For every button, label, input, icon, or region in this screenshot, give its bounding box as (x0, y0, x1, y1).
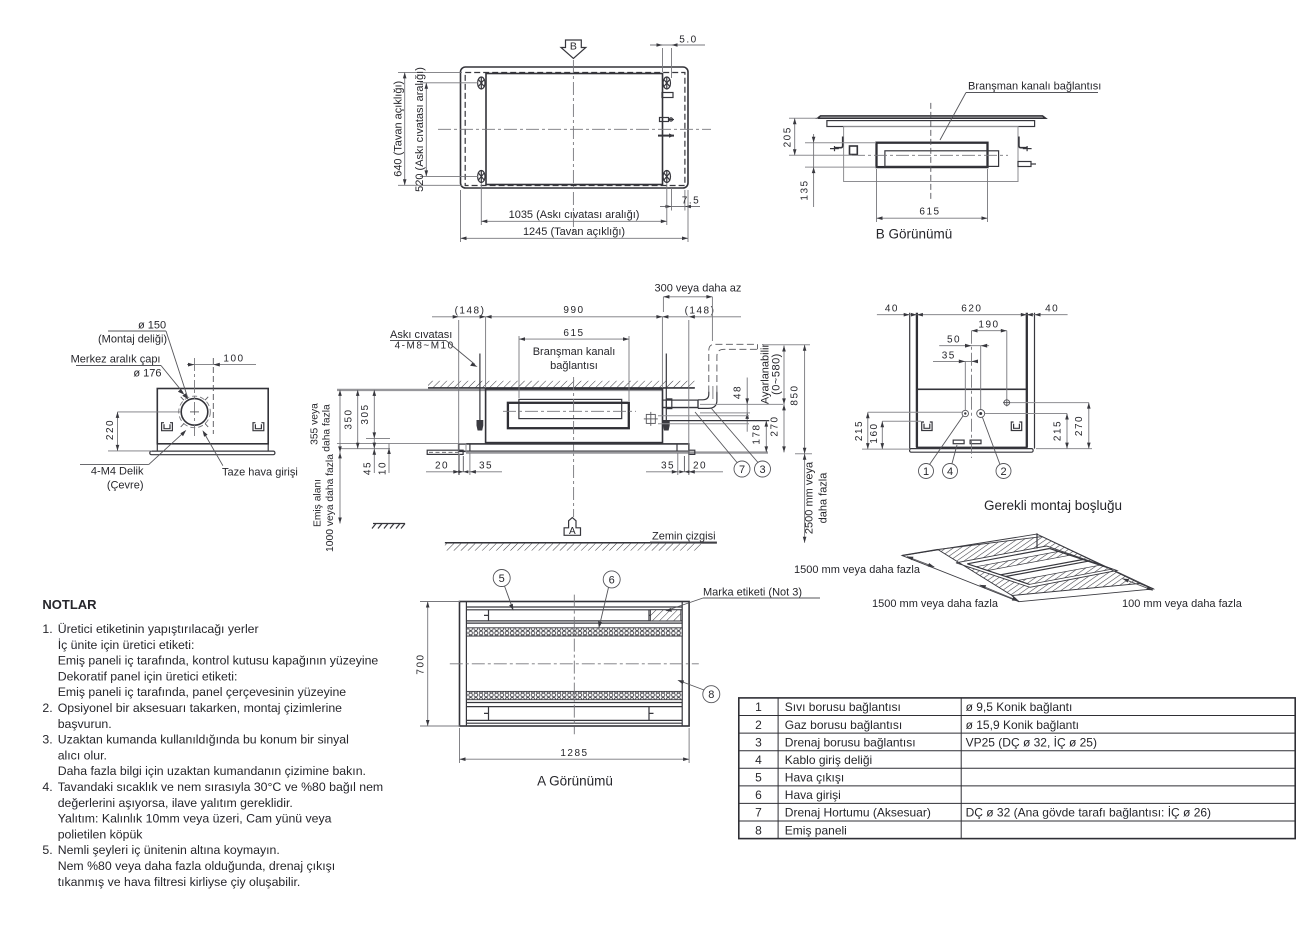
svg-text:48: 48 (733, 385, 744, 399)
svg-text:50: 50 (947, 335, 961, 346)
svg-text:1285: 1285 (560, 748, 588, 759)
svg-text:5.0: 5.0 (679, 35, 697, 46)
svg-text:A Görünümü: A Görünümü (537, 774, 613, 789)
svg-text:(0~580): (0~580) (771, 353, 783, 395)
svg-text:1000 veya daha fazla: 1000 veya daha fazla (325, 454, 336, 552)
svg-text:2: 2 (1000, 466, 1006, 478)
svg-text:İç ünite için üretici etiketi:: İç ünite için üretici etiketi: (58, 638, 195, 652)
svg-text:Opsiyonel bir aksesuarı takark: Opsiyonel bir aksesuarı takarken, montaj… (58, 701, 342, 715)
svg-text:1500 mm veya daha fazla: 1500 mm veya daha fazla (794, 564, 921, 576)
svg-text:215: 215 (1053, 420, 1064, 441)
svg-text:Merkez aralık çapı: Merkez aralık çapı (71, 354, 161, 366)
svg-text:305: 305 (360, 403, 371, 424)
svg-text:20: 20 (693, 461, 707, 472)
svg-text:B: B (570, 41, 577, 53)
svg-text:alıcı olur.: alıcı olur. (58, 748, 107, 762)
svg-text:4: 4 (755, 753, 762, 767)
svg-text:Emiş paneli: Emiş paneli (785, 823, 847, 837)
svg-text:6: 6 (755, 788, 762, 802)
svg-text:Hava çıkışı: Hava çıkışı (785, 771, 844, 785)
svg-text:1500 mm veya daha fazla: 1500 mm veya daha fazla (872, 598, 999, 610)
svg-text:değerlerini aşıyorsa, ilave ya: değerlerini aşıyorsa, ilave yalıtım gere… (58, 796, 293, 810)
svg-text:Marka etiketi (Not 3): Marka etiketi (Not 3) (703, 587, 802, 599)
svg-text:355 veya: 355 veya (310, 403, 321, 445)
svg-text:Askı cıvatası: Askı cıvatası (390, 329, 452, 341)
svg-text:başvurun.: başvurun. (58, 717, 112, 731)
svg-text:100 mm veya daha fazla: 100 mm veya daha fazla (1122, 598, 1243, 610)
svg-text:2500 mm veya: 2500 mm veya (804, 461, 816, 534)
svg-text:35: 35 (942, 351, 956, 362)
svg-text:Emiş alanı: Emiş alanı (313, 479, 324, 527)
svg-text:220: 220 (105, 419, 116, 440)
svg-text:Yalıtım: Kalınlık 10mm veya üz: Yalıtım: Kalınlık 10mm veya üzeri, Cam y… (58, 812, 332, 826)
svg-text:40: 40 (885, 304, 899, 315)
svg-text:640 (Tavan açıklığı): 640 (Tavan açıklığı) (393, 81, 405, 177)
svg-text:7.5: 7.5 (682, 196, 700, 207)
svg-text:Nem %80 veya daha fazla olduğu: Nem %80 veya daha fazla olduğunda, drena… (58, 859, 336, 873)
svg-text:1: 1 (923, 466, 929, 478)
svg-text:2: 2 (755, 718, 762, 732)
svg-text:4: 4 (947, 466, 953, 478)
svg-text:Kablo giriş deliği: Kablo giriş deliği (785, 753, 872, 767)
svg-text:bağlantısı: bağlantısı (550, 360, 598, 372)
svg-text:ø 150: ø 150 (138, 320, 166, 332)
svg-text:polietilen köpük: polietilen köpük (58, 827, 144, 841)
svg-text:Uzaktan kumanda kullanıldığınd: Uzaktan kumanda kullanıldığında bu konum… (58, 733, 349, 747)
svg-text:35: 35 (479, 461, 493, 472)
svg-text:8: 8 (755, 823, 762, 837)
svg-text:Branşman kanalı: Branşman kanalı (533, 346, 616, 358)
svg-text:2.: 2. (42, 701, 52, 715)
svg-text:daha fazla: daha fazla (322, 404, 333, 452)
svg-text:8: 8 (708, 689, 714, 701)
svg-text:5: 5 (499, 573, 505, 585)
svg-text:620: 620 (961, 304, 982, 315)
svg-text:215: 215 (854, 420, 865, 441)
svg-text:Drenaj borusu bağlantısı: Drenaj borusu bağlantısı (785, 735, 916, 749)
svg-text:ø 15,9 Konik bağlantı: ø 15,9 Konik bağlantı (966, 718, 1079, 732)
svg-text:ø 9,5 Konik bağlantı: ø 9,5 Konik bağlantı (966, 700, 1073, 714)
svg-text:4-M4 Delik: 4-M4 Delik (91, 466, 144, 478)
svg-text:Hava girişi: Hava girişi (785, 788, 841, 802)
svg-text:270: 270 (770, 415, 781, 436)
svg-text:7: 7 (739, 464, 745, 476)
svg-text:Zemin çizgisi: Zemin çizgisi (652, 531, 716, 543)
svg-text:6: 6 (609, 574, 615, 586)
svg-text:5.: 5. (42, 843, 52, 857)
svg-text:Gaz borusu bağlantısı: Gaz borusu bağlantısı (785, 718, 902, 732)
svg-text:Taze hava girişi: Taze hava girişi (222, 467, 298, 479)
svg-text:100: 100 (223, 354, 244, 365)
svg-text:135: 135 (800, 179, 811, 200)
svg-text:NOTLAR: NOTLAR (42, 597, 97, 612)
svg-text:Emiş paneli iç tarafında, kont: Emiş paneli iç tarafında, kontrol kutusu… (58, 654, 379, 668)
svg-text:190: 190 (978, 320, 999, 331)
svg-text:20: 20 (435, 461, 449, 472)
svg-text:4-M8~M10: 4-M8~M10 (395, 341, 455, 352)
svg-text:(148): (148) (455, 306, 486, 317)
svg-text:350: 350 (344, 408, 355, 429)
svg-text:Gerekli montaj boşluğu: Gerekli montaj boşluğu (984, 498, 1122, 513)
svg-text:daha fazla: daha fazla (818, 472, 830, 524)
svg-text:1: 1 (755, 700, 762, 714)
svg-text:Emiş paneli iç tarafında, pane: Emiş paneli iç tarafında, panel çerçeves… (58, 685, 347, 699)
svg-text:(Çevre): (Çevre) (107, 480, 144, 492)
svg-text:1035 (Askı cıvatası aralığı): 1035 (Askı cıvatası aralığı) (509, 209, 640, 221)
svg-text:1.: 1. (42, 622, 52, 636)
svg-text:35: 35 (661, 461, 675, 472)
svg-text:(148): (148) (685, 306, 716, 317)
svg-text:B Görünümü: B Görünümü (876, 227, 953, 242)
svg-text:3.: 3. (42, 733, 52, 747)
svg-text:Sıvı borusu bağlantısı: Sıvı borusu bağlantısı (785, 700, 901, 714)
svg-text:Daha fazla bilgi için uzaktan: Daha fazla bilgi için uzaktan kumandanın… (58, 764, 366, 778)
svg-text:615: 615 (919, 207, 940, 218)
svg-text:205: 205 (783, 126, 794, 147)
svg-text:ø 176: ø 176 (133, 368, 161, 380)
svg-text:700: 700 (416, 653, 427, 674)
svg-text:7: 7 (755, 806, 762, 820)
svg-text:10: 10 (378, 461, 389, 475)
svg-text:A: A (569, 526, 576, 537)
svg-text:520 (Askı cıvatası aralığı): 520 (Askı cıvatası aralığı) (414, 67, 426, 192)
svg-text:Dekoratif panel için üretici e: Dekoratif panel için üretici etiketi: (58, 669, 238, 683)
svg-text:1245 (Tavan açıklığı): 1245 (Tavan açıklığı) (523, 226, 625, 238)
svg-text:VP25 (DÇ ø 32, İÇ ø 25): VP25 (DÇ ø 32, İÇ ø 25) (966, 735, 1097, 749)
svg-text:45: 45 (363, 461, 374, 475)
svg-text:615: 615 (563, 328, 584, 339)
svg-text:Branşman kanalı bağlantısı: Branşman kanalı bağlantısı (968, 81, 1101, 93)
svg-text:40: 40 (1045, 304, 1059, 315)
svg-text:4.: 4. (42, 780, 52, 794)
svg-text:3: 3 (755, 735, 762, 749)
svg-text:270: 270 (1074, 415, 1085, 436)
svg-text:300 veya daha az: 300 veya daha az (655, 283, 742, 295)
svg-text:3: 3 (759, 464, 765, 476)
svg-text:Drenaj Hortumu (Aksesuar): Drenaj Hortumu (Aksesuar) (785, 806, 931, 820)
svg-text:Üretici etiketinin yapıştırıla: Üretici etiketinin yapıştırılacağı yerle… (58, 622, 259, 636)
svg-text:850: 850 (790, 384, 801, 405)
svg-text:990: 990 (563, 305, 584, 316)
svg-text:160: 160 (869, 422, 880, 443)
svg-text:(Montaj deliği): (Montaj deliği) (98, 334, 167, 346)
svg-text:Tavandaki sıcaklık ve nem sıra: Tavandaki sıcaklık ve nem sırasıyla 30°C… (58, 780, 383, 794)
svg-text:tıkanmış ve hava filtresi kirl: tıkanmış ve hava filtresi kirliyse çiy o… (58, 875, 301, 889)
svg-text:Nemli şeyleri iç ünitenin altı: Nemli şeyleri iç ünitenin altına koymayı… (58, 843, 280, 857)
svg-text:178: 178 (752, 423, 763, 444)
svg-text:DÇ ø 32 (Ana gövde tarafı bağ: DÇ ø 32 (Ana gövde tarafı bağlantısı: İÇ… (966, 806, 1211, 820)
svg-text:5: 5 (755, 771, 762, 785)
